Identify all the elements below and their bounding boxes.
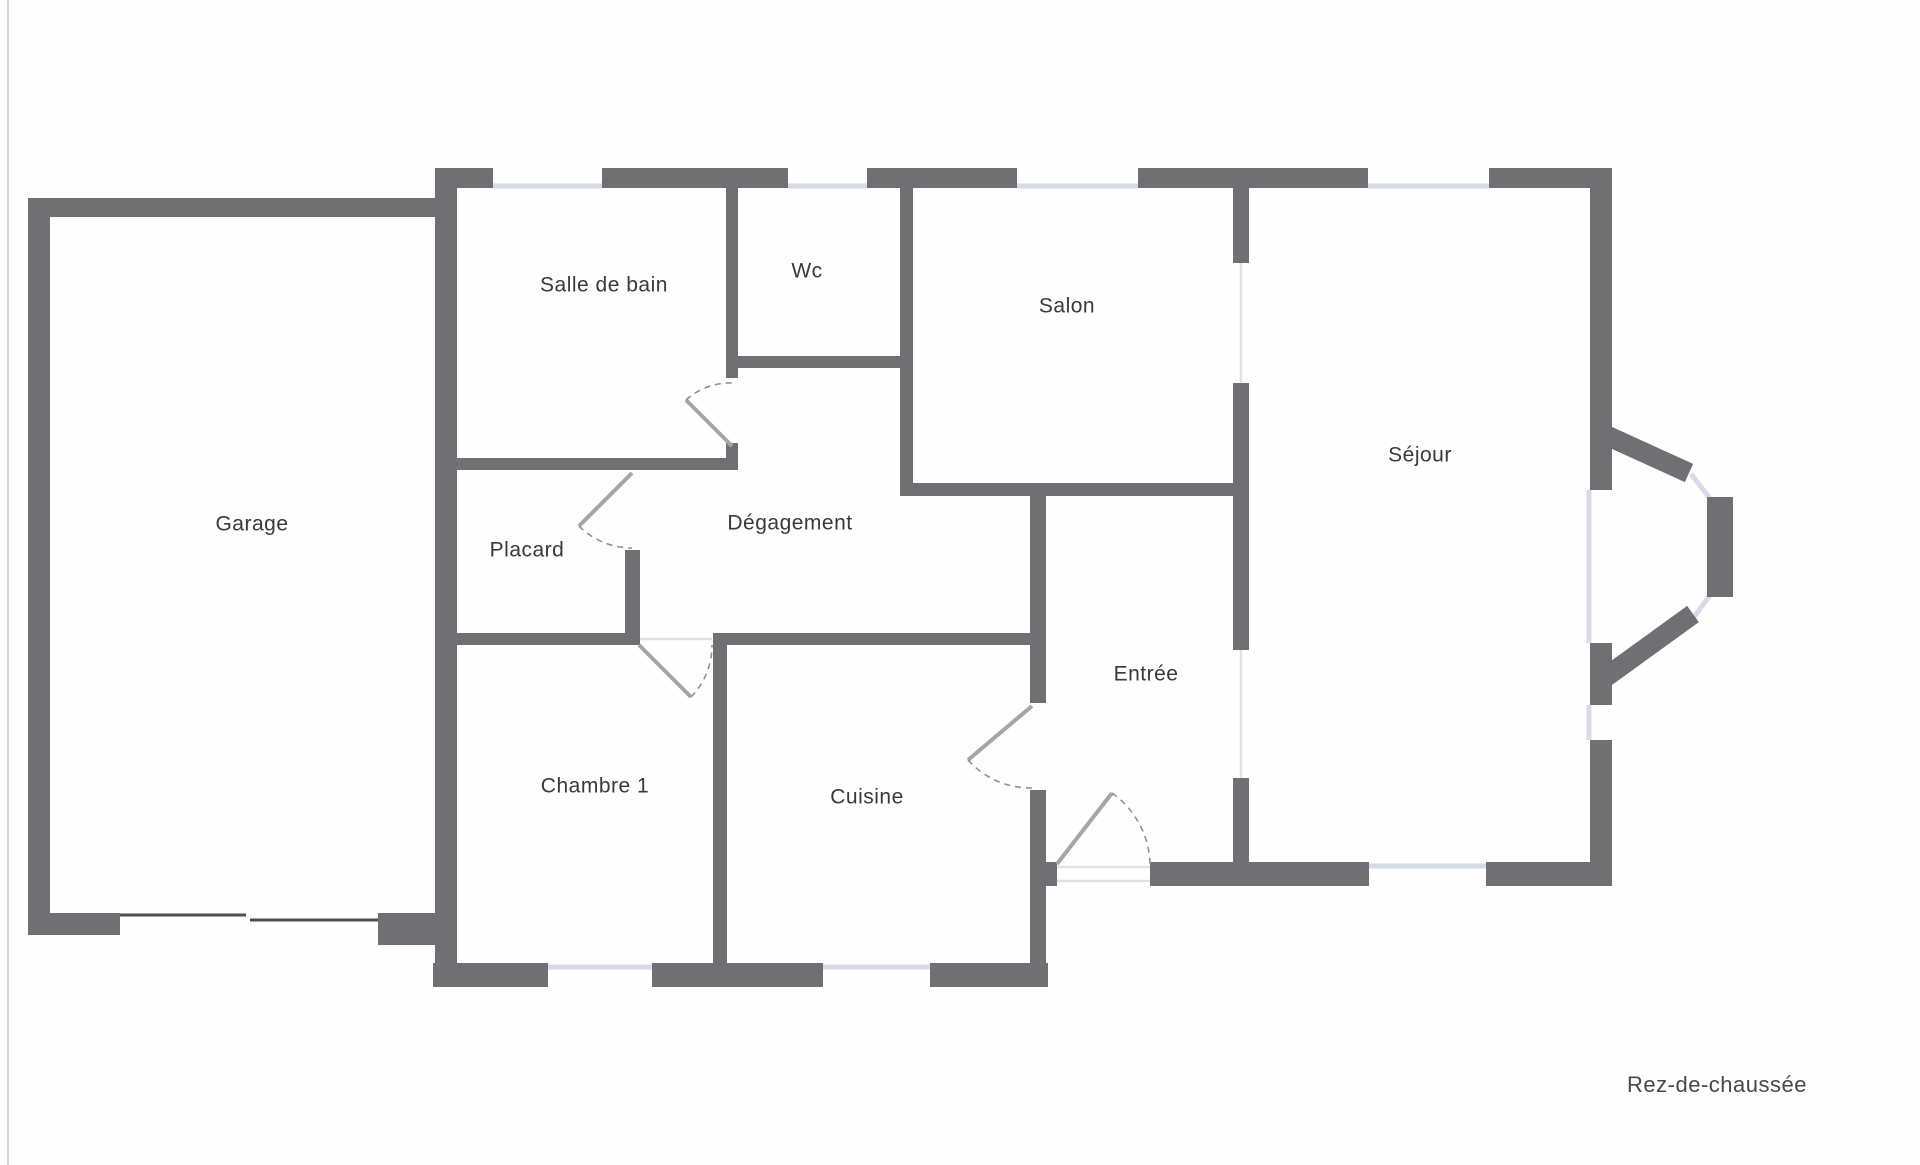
wall-segment xyxy=(1233,188,1249,263)
entree-door-arc xyxy=(1112,793,1150,864)
salle-de-bain-door-arc xyxy=(686,383,732,400)
wall-segment xyxy=(602,168,788,188)
wall-segment xyxy=(1486,862,1612,886)
placard-door-leaf xyxy=(579,473,632,526)
room-label-cuisine: Cuisine xyxy=(830,786,904,809)
floor-plan-page: GarageSalle de bainWcSalonSéjourPlacardD… xyxy=(0,0,1920,1165)
salle-de-bain-door-leaf xyxy=(686,400,732,446)
wall-segment xyxy=(435,168,493,188)
wall-segment xyxy=(435,168,457,987)
bay-wall-segment xyxy=(1599,614,1693,682)
room-label-chambre-1: Chambre 1 xyxy=(541,775,649,798)
window xyxy=(1691,474,1712,501)
wall-segment xyxy=(1150,862,1369,886)
wall-segment xyxy=(1138,168,1368,188)
floor-level-label: Rez-de-chaussée xyxy=(1627,1072,1807,1097)
room-label-garage: Garage xyxy=(215,513,288,536)
wall-segment xyxy=(900,188,913,496)
wall-segment xyxy=(726,443,738,470)
wall-segment xyxy=(28,198,50,935)
room-label-degagement: Dégagement xyxy=(727,512,852,535)
floor-plan-svg: GarageSalle de bainWcSalonSéjourPlacardD… xyxy=(0,0,1920,1165)
wall-segment xyxy=(1233,383,1249,650)
cuisine-door-arc xyxy=(968,760,1032,788)
bay-wall-segment xyxy=(1599,432,1689,473)
window xyxy=(1694,595,1710,617)
wall-segment xyxy=(713,633,1046,645)
wall-segment xyxy=(1233,778,1249,886)
room-label-salon: Salon xyxy=(1039,295,1095,318)
wall-segment xyxy=(726,188,738,378)
room-label-sejour: Séjour xyxy=(1388,444,1452,467)
cuisine-door-leaf xyxy=(968,706,1032,760)
wall-segment xyxy=(726,356,905,368)
wall-segment xyxy=(28,198,435,217)
room-label-placard: Placard xyxy=(490,539,565,562)
wall-segment xyxy=(900,483,1249,496)
wall-segment xyxy=(867,168,1017,188)
wall-segment xyxy=(378,913,435,945)
wall-segment xyxy=(450,458,737,470)
wall-segment xyxy=(1030,483,1046,703)
wall-segment xyxy=(930,963,1048,987)
room-label-salle-de-bain: Salle de bain xyxy=(540,274,668,297)
wall-segment xyxy=(433,963,548,987)
placard-door-arc xyxy=(579,526,632,548)
wall-segment xyxy=(1030,790,1046,987)
wall-segment xyxy=(1707,497,1733,597)
entree-door-leaf xyxy=(1057,793,1112,864)
room-label-entree: Entrée xyxy=(1114,663,1179,686)
wall-segment xyxy=(435,633,637,645)
wall-segment xyxy=(28,913,120,935)
chambre-door-leaf xyxy=(639,645,691,697)
chambre-door-arc xyxy=(691,645,712,697)
wall-segment xyxy=(652,963,823,987)
wall-segment xyxy=(713,633,727,987)
wall-segment xyxy=(625,550,640,645)
room-label-wc: Wc xyxy=(791,260,822,283)
